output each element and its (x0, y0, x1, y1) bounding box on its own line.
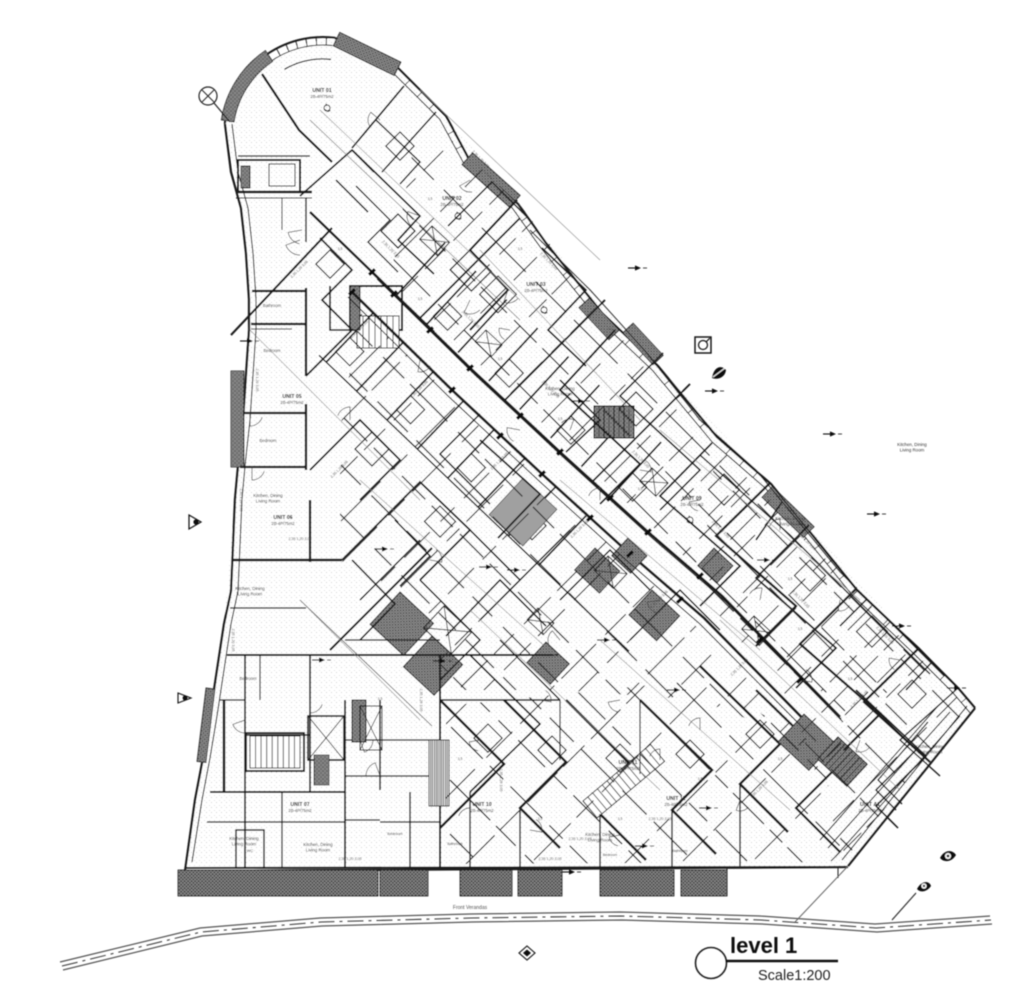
svg-text:2,35 1,20 3,05: 2,35 1,20 3,05 (239, 489, 243, 512)
svg-text:3,5: 3,5 (798, 627, 803, 631)
svg-text:3,5: 3,5 (498, 357, 503, 361)
svg-text:3,5: 3,5 (608, 327, 613, 331)
svg-text:Living Room: Living Room (900, 448, 925, 453)
svg-text:Bathroom: Bathroom (263, 303, 282, 308)
svg-text:3,5: 3,5 (428, 197, 433, 201)
svg-text:2B-4P/75m2: 2B-4P/75m2 (280, 400, 304, 405)
svg-text:Bedroom: Bedroom (260, 438, 278, 443)
svg-text:3,5: 3,5 (418, 297, 423, 301)
svg-text:3,5: 3,5 (338, 247, 343, 251)
svg-text:3,5: 3,5 (698, 777, 703, 781)
svg-text:Kitchen, Dining: Kitchen, Dining (897, 442, 927, 447)
svg-text:2,35 1,20 3,05: 2,35 1,20 3,05 (255, 369, 259, 392)
svg-text:Bathroom: Bathroom (447, 842, 463, 846)
svg-text:2,35 1,20 3,05: 2,35 1,20 3,05 (649, 817, 672, 821)
svg-text:Living Room: Living Room (778, 522, 803, 527)
svg-text:3,5: 3,5 (558, 417, 563, 421)
svg-text:Kitchen, Dining: Kitchen, Dining (229, 836, 259, 841)
svg-text:3,5: 3,5 (638, 487, 643, 491)
svg-text:2,35 1,20 3,05: 2,35 1,20 3,05 (569, 837, 592, 841)
svg-text:WC: WC (247, 848, 254, 853)
svg-text:3,5: 3,5 (458, 757, 463, 761)
svg-text:level 1: level 1 (730, 933, 797, 958)
svg-text:2,35 1,20 3,05: 2,35 1,20 3,05 (339, 857, 362, 861)
svg-text:Bedroom: Bedroom (603, 853, 618, 857)
svg-text:2,35 1,20 3,05: 2,35 1,20 3,05 (539, 857, 562, 861)
svg-text:Kitchen, Dining: Kitchen, Dining (235, 586, 265, 591)
svg-text:Living Room: Living Room (232, 842, 257, 847)
svg-text:Living Room: Living Room (238, 592, 263, 597)
svg-text:3,5: 3,5 (858, 757, 863, 761)
svg-text:3,5: 3,5 (618, 817, 623, 821)
svg-text:2B-4P/75m2: 2B-4P/75m2 (310, 94, 334, 99)
svg-text:2,35 1,20 3,05: 2,35 1,20 3,05 (289, 537, 312, 541)
svg-text:2B-4P/75m2: 2B-4P/75m2 (616, 766, 640, 771)
svg-text:Bedroom: Bedroom (240, 676, 258, 681)
svg-text:3,5: 3,5 (518, 247, 523, 251)
svg-text:Bathroom: Bathroom (672, 849, 688, 853)
svg-text:Living Room: Living Room (256, 499, 281, 504)
svg-text:2,35 1,20 3,05: 2,35 1,20 3,05 (419, 689, 423, 712)
svg-text:3,5: 3,5 (778, 757, 783, 761)
svg-text:Living Room: Living Room (306, 848, 331, 853)
svg-text:3,5: 3,5 (788, 577, 793, 581)
svg-text:3,5: 3,5 (848, 677, 853, 681)
svg-text:2,35 1,20 3,05: 2,35 1,20 3,05 (499, 769, 503, 792)
svg-text:3,5: 3,5 (718, 557, 723, 561)
svg-text:2B-4P/75m2: 2B-4P/75m2 (288, 808, 312, 813)
svg-text:2B-4P/75m2: 2B-4P/75m2 (271, 521, 295, 526)
svg-text:Bedroom: Bedroom (387, 832, 402, 836)
svg-text:2,35 1,20 3,05: 2,35 1,20 3,05 (231, 629, 235, 652)
svg-text:Kitchen, Dining: Kitchen, Dining (303, 842, 333, 847)
svg-text:Kitchen, Dining: Kitchen, Dining (253, 493, 283, 498)
svg-text:3,5: 3,5 (378, 697, 383, 701)
svg-text:3,5: 3,5 (538, 817, 543, 821)
svg-text:Scale1:200: Scale1:200 (758, 968, 831, 984)
svg-text:Front Verandas: Front Verandas (453, 905, 488, 911)
svg-text:3,5: 3,5 (698, 417, 703, 421)
